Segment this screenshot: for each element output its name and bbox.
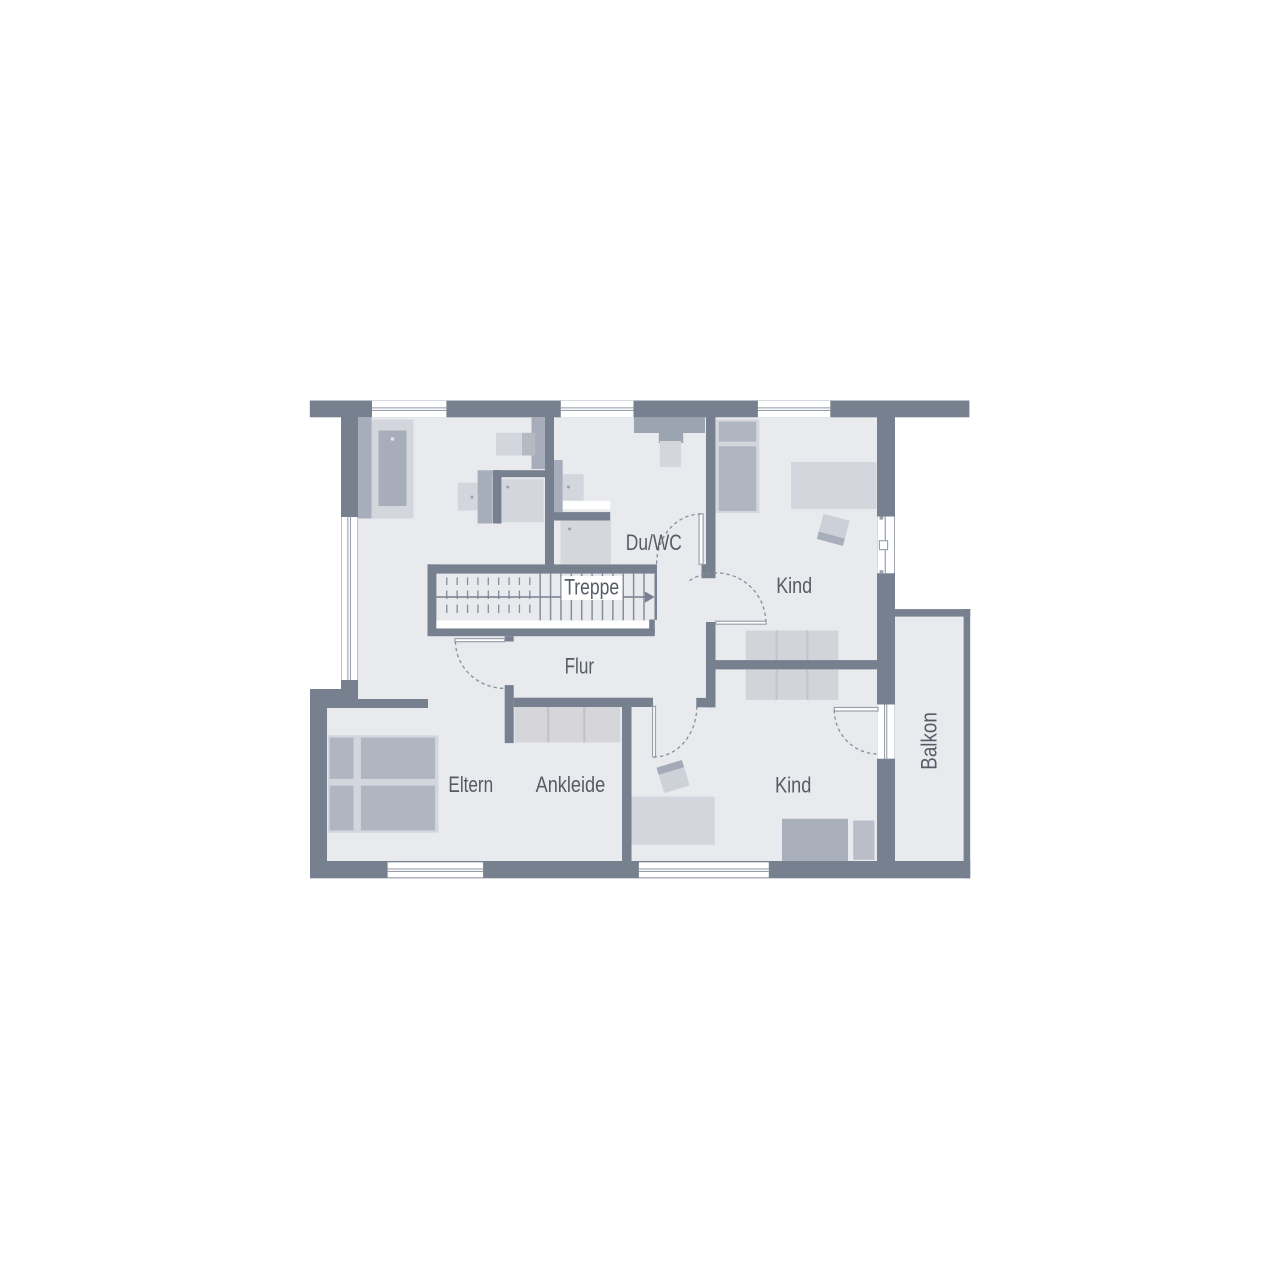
svg-text:Flur: Flur xyxy=(565,653,595,678)
svg-text:Kind: Kind xyxy=(776,573,812,598)
svg-text:Ankleide: Ankleide xyxy=(536,772,606,797)
svg-text:Eltern: Eltern xyxy=(448,772,493,797)
svg-text:Balkon: Balkon xyxy=(916,712,941,770)
svg-text:Treppe: Treppe xyxy=(564,574,619,599)
svg-text:Du/WC: Du/WC xyxy=(626,530,682,555)
svg-text:Kind: Kind xyxy=(775,773,811,798)
